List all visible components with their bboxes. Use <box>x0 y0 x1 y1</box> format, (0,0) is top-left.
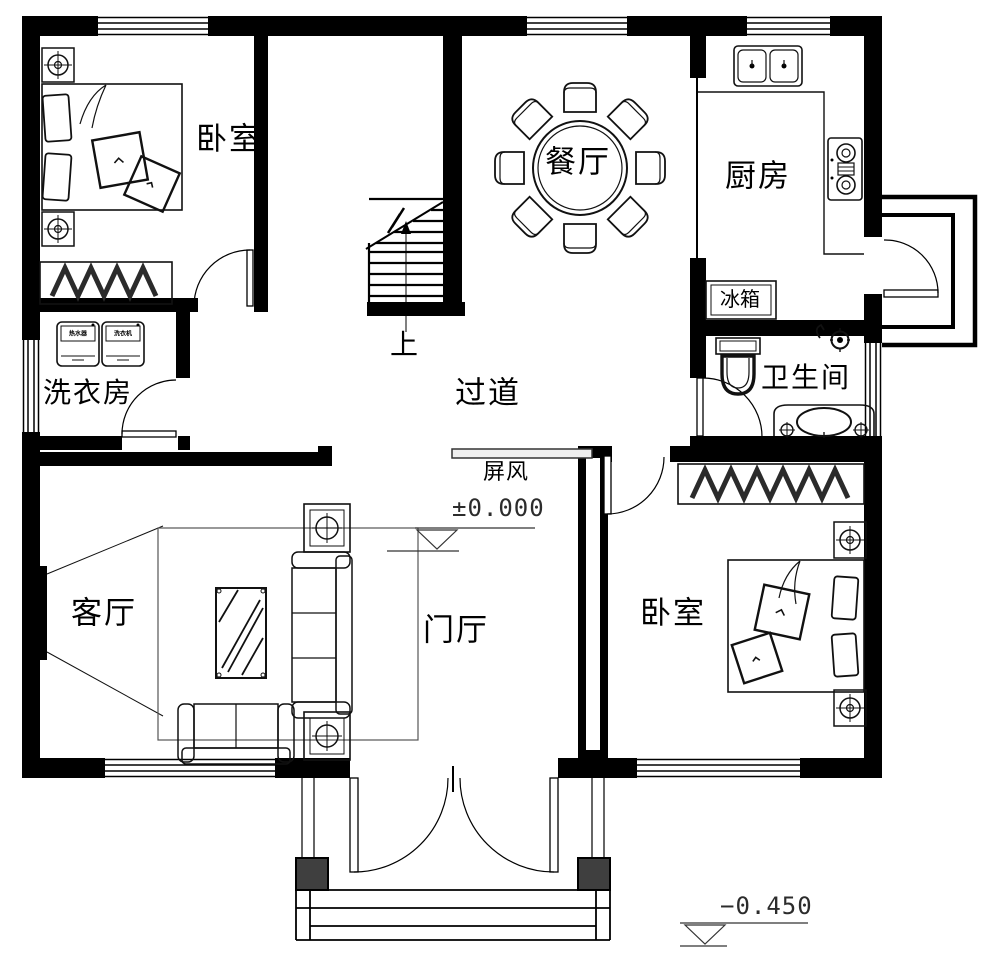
pillow <box>832 576 859 620</box>
bed <box>728 560 864 692</box>
nightstand <box>42 212 74 246</box>
screen-label: 屏风 <box>483 461 529 483</box>
window-bathroom-right <box>864 343 882 441</box>
sofa-two-seat <box>178 704 294 764</box>
pillow <box>832 633 859 677</box>
window-bedroom1-top <box>98 16 208 36</box>
side-porch <box>882 197 975 345</box>
bedroom1-furniture <box>40 48 182 304</box>
floor-plan: 卧室 餐厅 厨房 洗衣房 过道 卫生间 客厅 门厅 卧室 上 屏风 冰箱 ±0.… <box>0 0 1000 964</box>
wardrobe <box>40 262 172 304</box>
pillow <box>42 153 71 201</box>
kitchen-sink <box>734 46 802 86</box>
door-bedroom2 <box>604 456 664 514</box>
porch-column <box>296 858 328 890</box>
entry-steps <box>296 890 610 940</box>
toilet <box>716 338 760 394</box>
window-kitchen-top <box>747 16 830 36</box>
window-laundry-left <box>22 340 40 432</box>
room-label-kitchen: 厨房 <box>725 161 791 192</box>
room-label-bathroom: 卫生间 <box>761 364 851 392</box>
bedroom2-furniture <box>678 464 866 726</box>
room-label-bedroom2: 卧室 <box>640 598 706 629</box>
room-label-dining: 餐厅 <box>545 147 611 178</box>
pillow <box>42 94 71 142</box>
porch-column <box>578 858 610 890</box>
appliance-label-left: 热水器 <box>69 329 87 338</box>
nightstand <box>42 48 74 82</box>
stairs-up-label: 上 <box>390 331 418 359</box>
sofa-three-seat <box>292 552 352 718</box>
room-label-laundry: 洗衣房 <box>43 379 133 407</box>
stove <box>828 138 862 200</box>
cushion <box>124 156 179 211</box>
wardrobe <box>678 464 864 504</box>
nightstand <box>834 522 866 558</box>
screen-partition <box>452 449 592 458</box>
appliance-label-right: 洗衣机 <box>114 329 132 338</box>
vanity-sink <box>774 405 874 438</box>
living-furniture <box>38 504 418 764</box>
wall-tv <box>38 566 47 660</box>
door-bedroom1 <box>194 250 253 306</box>
cushion <box>732 633 782 683</box>
bed <box>42 84 182 210</box>
stair-break-arrow <box>388 208 404 233</box>
rug <box>158 528 418 740</box>
entrance-porch <box>296 778 610 940</box>
nightstand <box>834 690 866 726</box>
level-marker-outdoor <box>680 923 808 946</box>
room-label-bedroom1: 卧室 <box>196 124 262 155</box>
door-kitchen-side <box>884 240 938 297</box>
coffee-table <box>216 588 266 678</box>
window-dining-top <box>527 16 627 36</box>
interior-walls <box>22 36 882 758</box>
fridge-label: 冰箱 <box>720 290 760 310</box>
level-outdoor-value: −0.450 <box>720 894 813 918</box>
cushion <box>755 585 810 640</box>
door-entrance-double <box>350 766 558 872</box>
room-label-corridor: 过道 <box>455 378 521 409</box>
side-table <box>304 712 350 760</box>
level-floor-value: ±0.000 <box>452 496 545 520</box>
room-label-foyer: 门厅 <box>423 615 489 646</box>
level-marker-floor <box>387 528 535 551</box>
room-label-living: 客厅 <box>71 598 137 629</box>
window-bedroom2-bottom <box>637 758 800 778</box>
